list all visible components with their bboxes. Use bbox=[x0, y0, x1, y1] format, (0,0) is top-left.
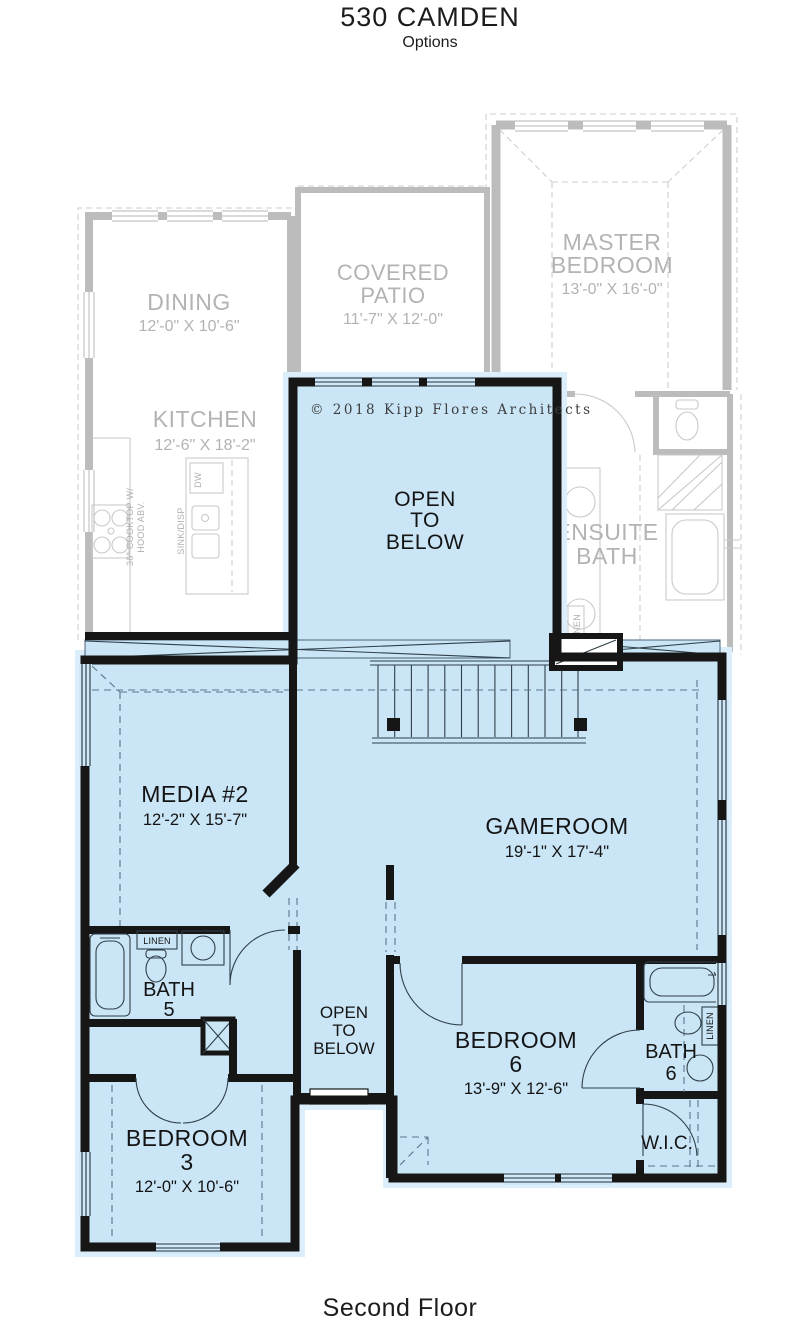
open-below-lower-1: OPEN bbox=[320, 1003, 368, 1022]
media2-label: MEDIA #2 bbox=[141, 781, 249, 807]
dining-dims: 12'-0" X 10'-6" bbox=[138, 318, 239, 335]
cooktop-note-line1: 36" COOKTOP W/ bbox=[125, 488, 135, 566]
bath5-label-2: 5 bbox=[163, 999, 174, 1021]
open-below-lower-2: TO bbox=[332, 1021, 355, 1040]
bath5-linen-label: LINEN bbox=[143, 936, 171, 946]
kitchen-dims: 12'-6" X 18'-2" bbox=[154, 437, 255, 454]
hall-closet-box bbox=[203, 1019, 233, 1053]
bath6-linen-label: LINEN bbox=[705, 1012, 715, 1040]
stair-newel-right bbox=[574, 718, 587, 731]
stair-newel-left bbox=[387, 718, 400, 731]
open-below-upper-1: OPEN bbox=[394, 488, 456, 511]
patio-label-2: PATIO bbox=[360, 283, 425, 308]
gameroom-dims: 19'-1" X 17'-4" bbox=[505, 843, 609, 861]
room-wic: W.I.C. bbox=[641, 1133, 693, 1154]
bedroom3-label-2: 3 bbox=[180, 1149, 193, 1175]
room-covered-patio: COVERED PATIO 11'-7" X 12'-0" bbox=[298, 190, 487, 380]
cooktop-note-line2: HOOD ABV. bbox=[136, 501, 146, 552]
bath6-label-1: BATH bbox=[645, 1041, 697, 1063]
sink-disposal-label: SINK/DISP bbox=[176, 507, 186, 554]
room-master-bedroom: MASTER BEDROOM 13'-0" X 16'-0" bbox=[492, 118, 732, 390]
floor-label: Second Floor bbox=[0, 1294, 800, 1323]
media2-dims: 12'-2" X 15'-7" bbox=[143, 811, 247, 829]
dishwasher-label: DW bbox=[193, 472, 203, 488]
patio-dims: 11'-7" X 12'-0" bbox=[343, 311, 443, 328]
dining-label: DINING bbox=[147, 289, 231, 315]
copyright-note: © 2018 Kipp Flores Architects bbox=[310, 402, 593, 418]
bedroom3-label-1: BEDROOM bbox=[126, 1125, 248, 1151]
room-gameroom: GAMEROOM 19'-1" X 17'-4" bbox=[485, 813, 628, 861]
room-media2: MEDIA #2 12'-2" X 15'-7" bbox=[141, 781, 249, 829]
floor-plan-page: 530 CAMDEN Options bbox=[0, 0, 800, 1334]
bedroom6-label-1: BEDROOM bbox=[455, 1027, 577, 1053]
open-below-lower-3: BELOW bbox=[313, 1039, 374, 1058]
wic-label: W.I.C. bbox=[641, 1133, 693, 1154]
master-dims: 13'-0" X 16'-0" bbox=[561, 281, 662, 298]
gameroom-label: GAMEROOM bbox=[485, 813, 628, 839]
open-below-upper-3: BELOW bbox=[386, 531, 464, 554]
patio-label-1: COVERED bbox=[337, 260, 449, 285]
room-dining-kitchen: 36" COOKTOP W/ HOOD ABV. DW SINK/DISP DI… bbox=[82, 209, 295, 636]
ensuite-label-1: ENSUITE bbox=[555, 519, 658, 545]
dining-windows bbox=[112, 209, 268, 223]
master-label-2: BEDROOM bbox=[551, 252, 673, 278]
floor-plan-canvas: 36" COOKTOP W/ HOOD ABV. DW SINK/DISP DI… bbox=[0, 0, 800, 1334]
bedroom3-dims: 12'-0" X 10'-6" bbox=[135, 1178, 239, 1196]
ensuite-label-2: BATH bbox=[576, 543, 638, 569]
room-ensuite-bath: LINEN ENSUITE BATH bbox=[555, 390, 740, 652]
bath6-label-2: 6 bbox=[665, 1063, 676, 1085]
open-below-upper-2: TO bbox=[410, 509, 440, 532]
kitchen-label: KITCHEN bbox=[153, 406, 257, 432]
bedroom6-dims: 13'-9" X 12'-6" bbox=[464, 1080, 568, 1098]
overlook-ledge bbox=[552, 636, 620, 668]
bath5-label-1: BATH bbox=[143, 979, 195, 1001]
bedroom6-label-2: 6 bbox=[509, 1051, 522, 1077]
master-windows bbox=[515, 118, 704, 132]
